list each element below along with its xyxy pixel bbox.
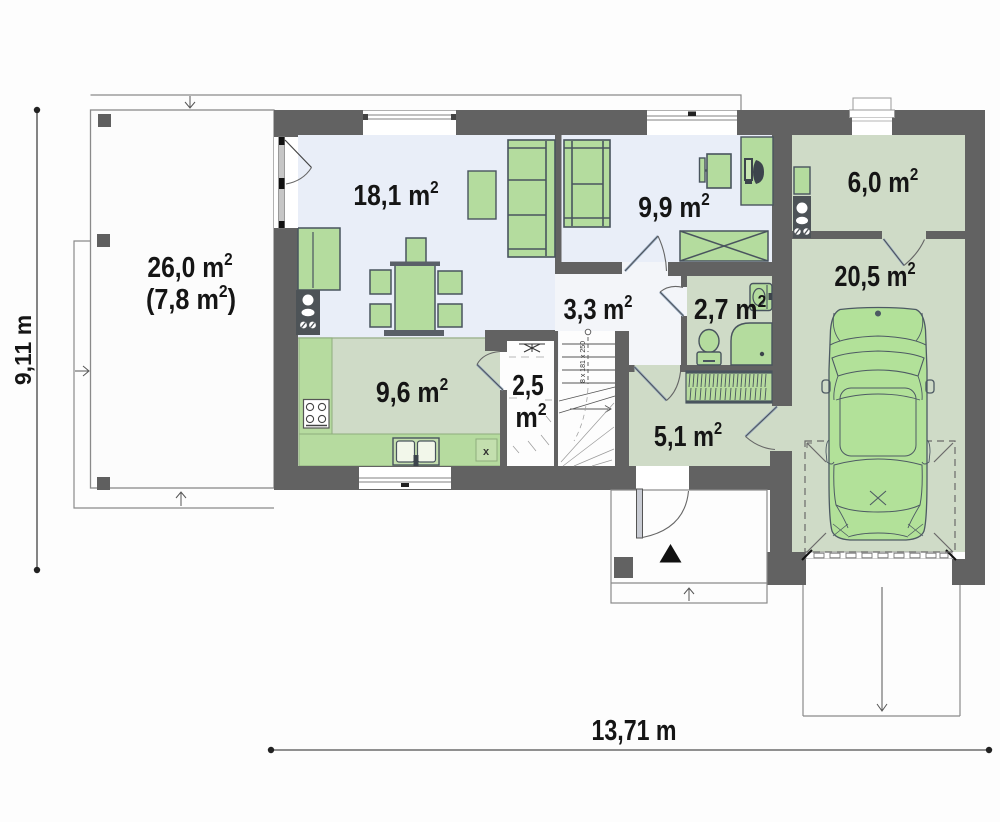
svg-text:20,5 m2: 20,5 m2 bbox=[834, 259, 915, 293]
svg-text:9,11 m: 9,11 m bbox=[10, 315, 36, 385]
svg-text:13,71 m: 13,71 m bbox=[591, 713, 676, 746]
svg-text:5,1 m2: 5,1 m2 bbox=[654, 419, 722, 453]
svg-text:26,0 m2: 26,0 m2 bbox=[147, 249, 232, 284]
svg-text:2,7 m2: 2,7 m2 bbox=[694, 291, 766, 326]
svg-text:18,1 m2: 18,1 m2 bbox=[353, 177, 438, 212]
svg-text:9,6 m2: 9,6 m2 bbox=[376, 374, 448, 409]
svg-text:x: x bbox=[483, 446, 490, 458]
svg-text:3,3 m2: 3,3 m2 bbox=[564, 292, 633, 326]
svg-text:2,5: 2,5 bbox=[512, 368, 543, 401]
svg-text:8 x 181 x 250: 8 x 181 x 250 bbox=[580, 341, 587, 383]
svg-text:6,0 m2: 6,0 m2 bbox=[848, 164, 919, 199]
svg-text:9,9 m2: 9,9 m2 bbox=[638, 189, 710, 224]
